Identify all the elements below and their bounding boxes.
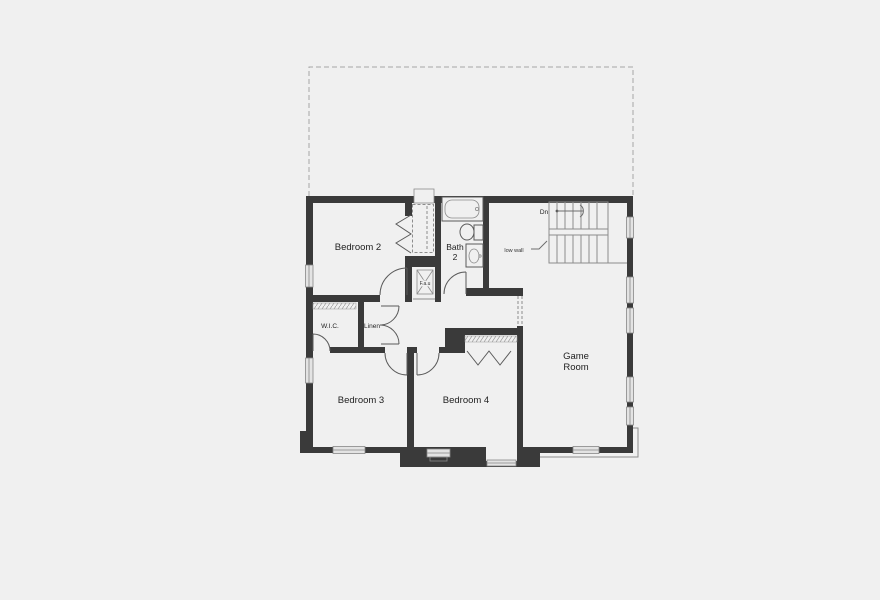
interior-walls <box>313 196 523 453</box>
top-wall-chase-notch <box>414 189 434 203</box>
label-stairs-down: Dn <box>540 209 549 216</box>
door-bedroom3 <box>385 353 407 375</box>
bifold-door-bedroom2-closet <box>396 215 411 253</box>
bathtub <box>442 197 483 221</box>
door-wic <box>313 334 330 351</box>
label-bedroom3: Bedroom 3 <box>338 395 384 406</box>
floor-plan-page: Bedroom 2 Bath 2 W.I.C. Linen Bedroom 3 … <box>0 0 880 600</box>
label-gameroom-line1: Game <box>563 351 589 362</box>
stair-treads-lower <box>557 235 597 263</box>
closet-shelf-pole <box>465 336 517 342</box>
door-bath2 <box>444 272 466 294</box>
label-low-wall: low wall <box>504 248 523 254</box>
bedroom2-closet <box>396 205 434 254</box>
label-gameroom-line2: Room <box>563 362 588 373</box>
bifold-door-bedroom4-closet <box>467 351 511 365</box>
bath-fixtures <box>442 197 483 267</box>
roof-outline-dashed <box>309 67 633 196</box>
label-bedroom4: Bedroom 4 <box>443 395 489 406</box>
door-bedroom4 <box>417 353 439 375</box>
wic-shelf <box>313 303 356 309</box>
door-bedroom2 <box>380 268 407 295</box>
floor-plan-drawing: Bedroom 2 Bath 2 W.I.C. Linen Bedroom 3 … <box>0 0 880 600</box>
doors <box>313 268 466 375</box>
label-linen: Linen <box>364 323 380 330</box>
low-wall-leader <box>531 241 547 249</box>
down-arrow <box>556 205 584 217</box>
sink-vanity <box>466 244 483 267</box>
fau-unit: F.a.u <box>417 270 433 294</box>
window-stair-right <box>627 217 634 238</box>
window-bedroom3-left <box>306 358 314 383</box>
stair-treads-upper <box>557 202 597 229</box>
door-linen-double <box>380 306 399 344</box>
label-bath2-line2: 2 <box>453 252 458 262</box>
bedroom4-closet <box>465 336 517 365</box>
label-wic: W.I.C. <box>321 323 339 330</box>
window-bedroom2-left <box>306 265 314 287</box>
cased-opening-dashed <box>518 296 522 326</box>
window-gameroom-right-lower <box>627 377 634 425</box>
window-bay-bottom <box>486 447 517 466</box>
window-bedroom3-bottom <box>333 447 365 454</box>
window-gameroom-bottom <box>573 447 599 454</box>
label-fau: F.a.u <box>420 281 431 287</box>
label-bedroom2: Bedroom 2 <box>335 242 381 253</box>
toilet <box>460 224 483 240</box>
label-bath2-line1: Bath <box>446 242 464 252</box>
